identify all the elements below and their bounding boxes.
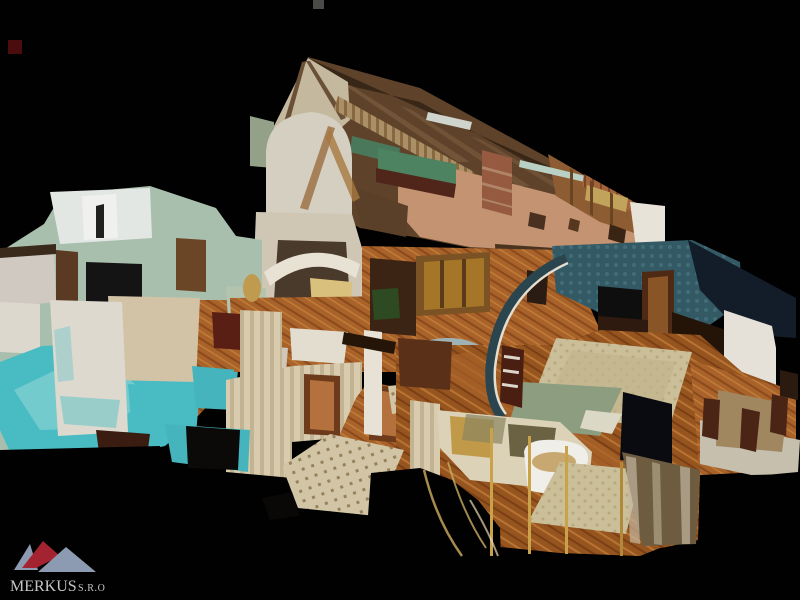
svg-text:S.R.O: S.R.O [78,583,105,594]
svg-text:MERKUS: MERKUS [10,578,77,595]
